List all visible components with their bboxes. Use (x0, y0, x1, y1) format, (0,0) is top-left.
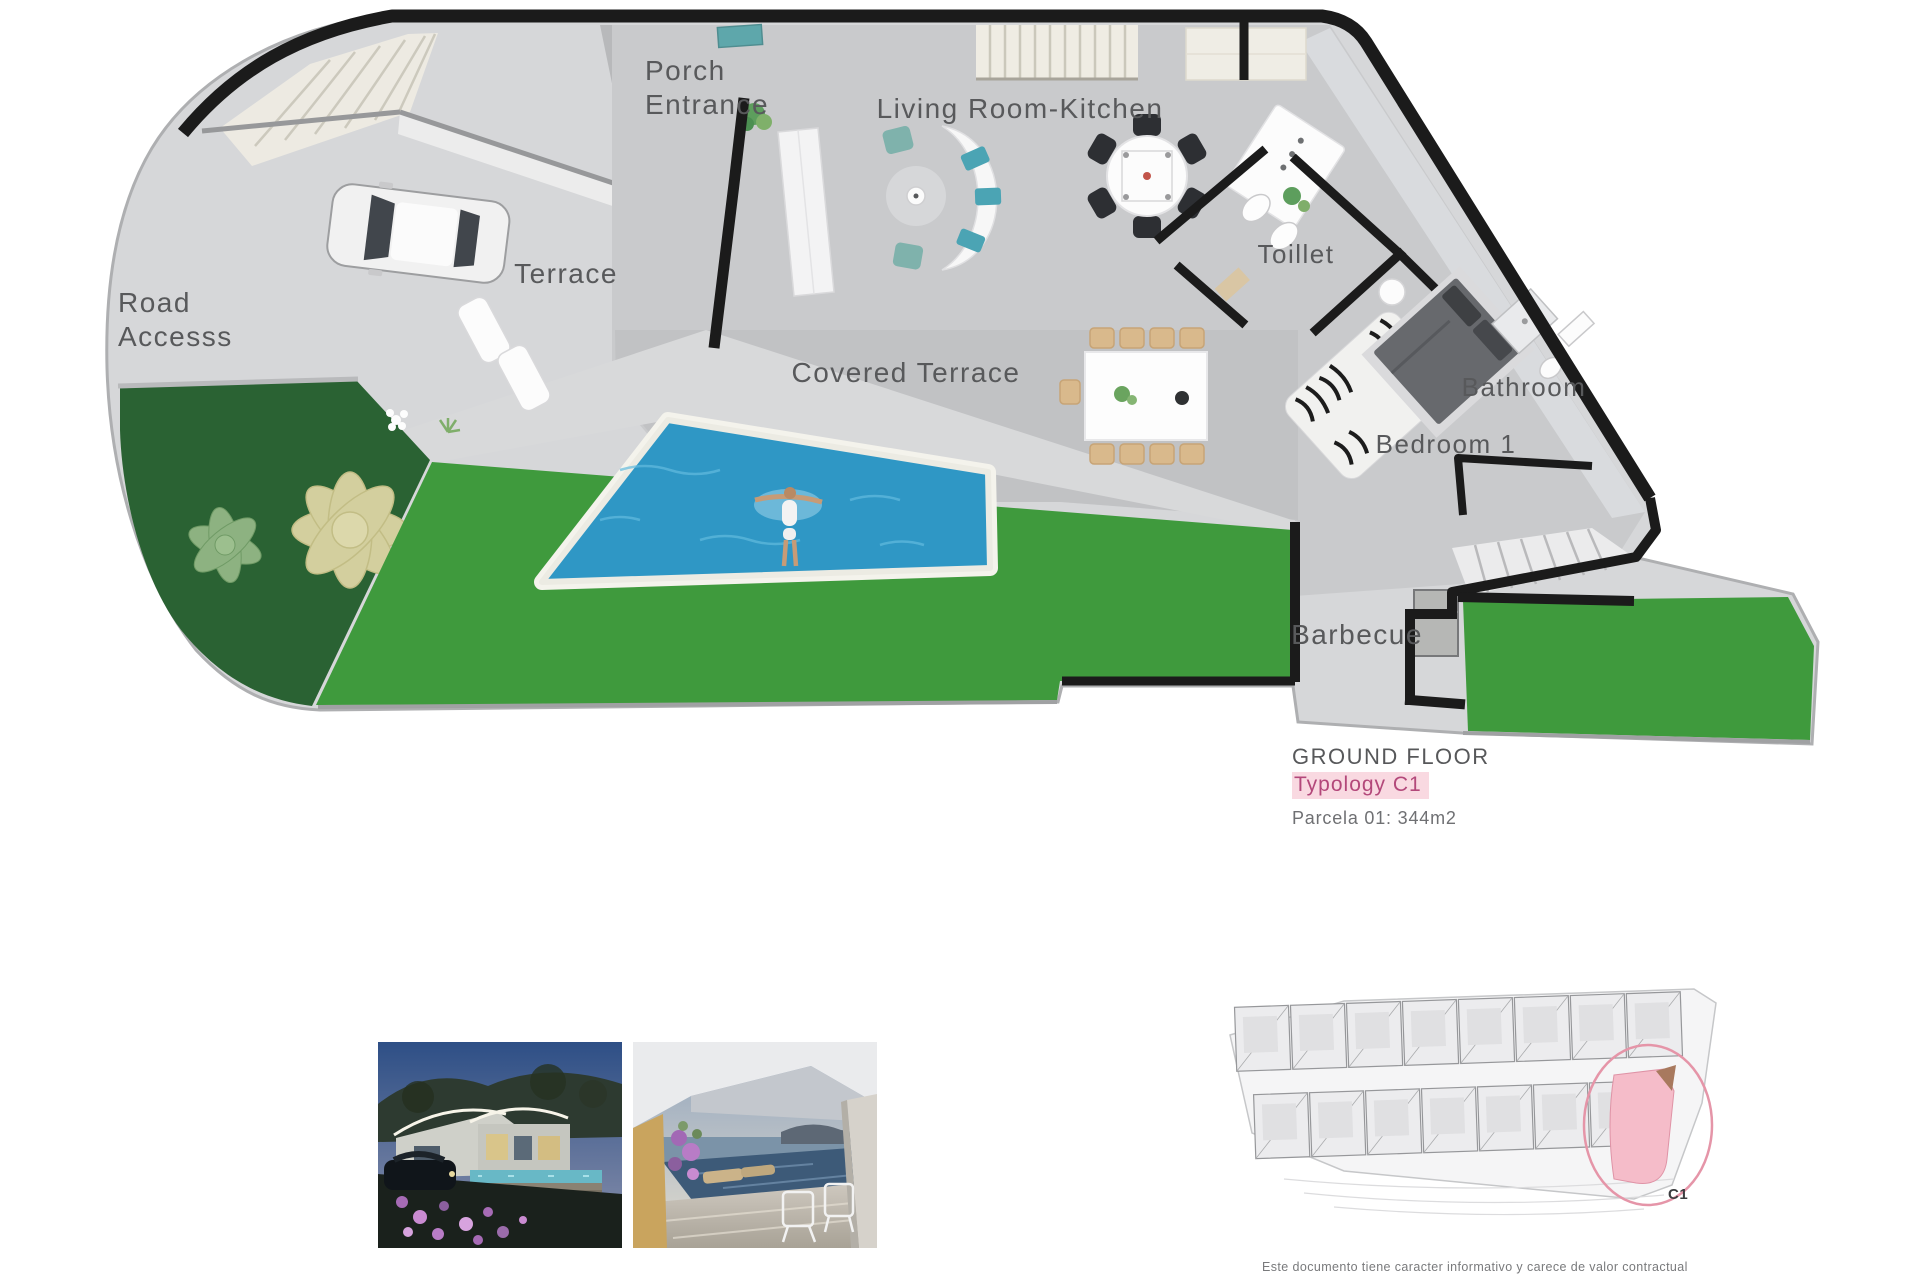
label-bathroom: Bathroom (1462, 372, 1587, 402)
label-bedroom: Bedroom 1 (1376, 429, 1517, 459)
lawn-right (1463, 597, 1814, 740)
label-porch: Porch (645, 55, 726, 86)
label-toilet: Toillet (1258, 239, 1335, 269)
photo-terrace-sea-view (633, 1042, 877, 1248)
floor-plan: Porch Entrance Living Room-Kitchen Terra… (0, 0, 1920, 770)
skylight (717, 24, 762, 47)
siteplan-unit-c1 (1610, 1069, 1674, 1184)
floor-plan-svg: Porch Entrance Living Room-Kitchen Terra… (0, 0, 1920, 770)
label-road: Road (118, 287, 191, 318)
stairs-top (976, 25, 1138, 79)
legend-typology: Typology C1 (1292, 772, 1429, 799)
legend-parcel: Parcela 01: 344m2 (1292, 808, 1490, 829)
legend-title: GROUND FLOOR (1292, 744, 1490, 770)
label-road-2: Accesss (118, 321, 233, 352)
disclaimer: Este documento tiene caracter informativ… (1262, 1260, 1688, 1274)
photo-villa-night (378, 1042, 622, 1248)
label-living: Living Room-Kitchen (877, 93, 1164, 124)
site-plan: C1 (1224, 983, 1728, 1225)
siteplan-c1-label: C1 (1668, 1186, 1688, 1203)
label-terrace: Terrace (514, 258, 618, 289)
label-porch-2: Entrance (645, 89, 769, 120)
label-barbecue: Barbecue (1291, 619, 1423, 650)
plan-legend: GROUND FLOOR Typology C1 Parcela 01: 344… (1292, 744, 1490, 829)
bedside-table (1379, 279, 1405, 305)
label-covered-terrace: Covered Terrace (792, 357, 1021, 388)
